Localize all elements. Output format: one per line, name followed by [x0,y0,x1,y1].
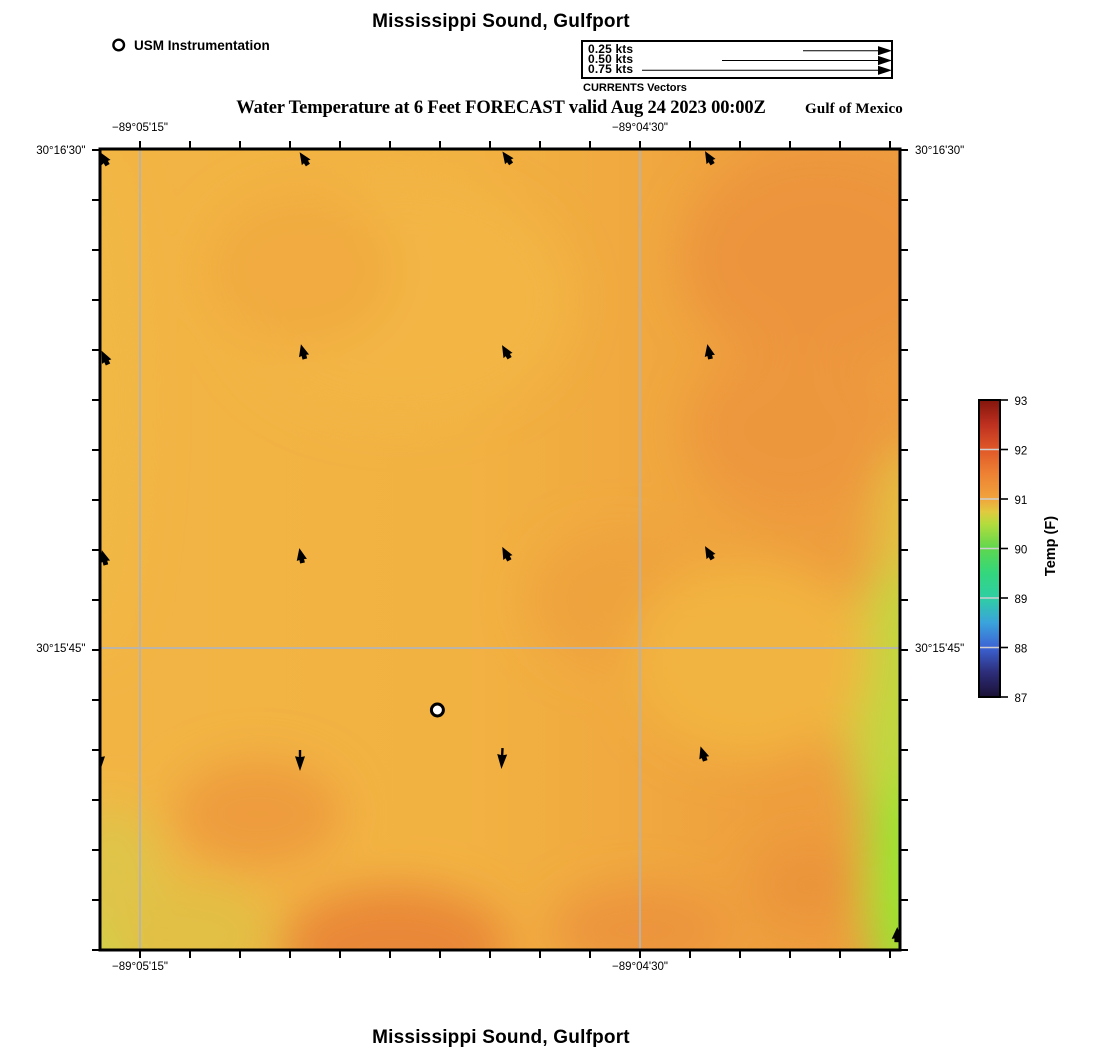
svg-text:92: 92 [1015,446,1028,458]
svg-text:89: 89 [1015,594,1028,606]
svg-text:90: 90 [1015,545,1028,557]
svg-text:91: 91 [1015,495,1028,507]
svg-text:88: 88 [1015,644,1028,656]
svg-text:93: 93 [1015,396,1028,408]
svg-text:87: 87 [1015,693,1028,705]
